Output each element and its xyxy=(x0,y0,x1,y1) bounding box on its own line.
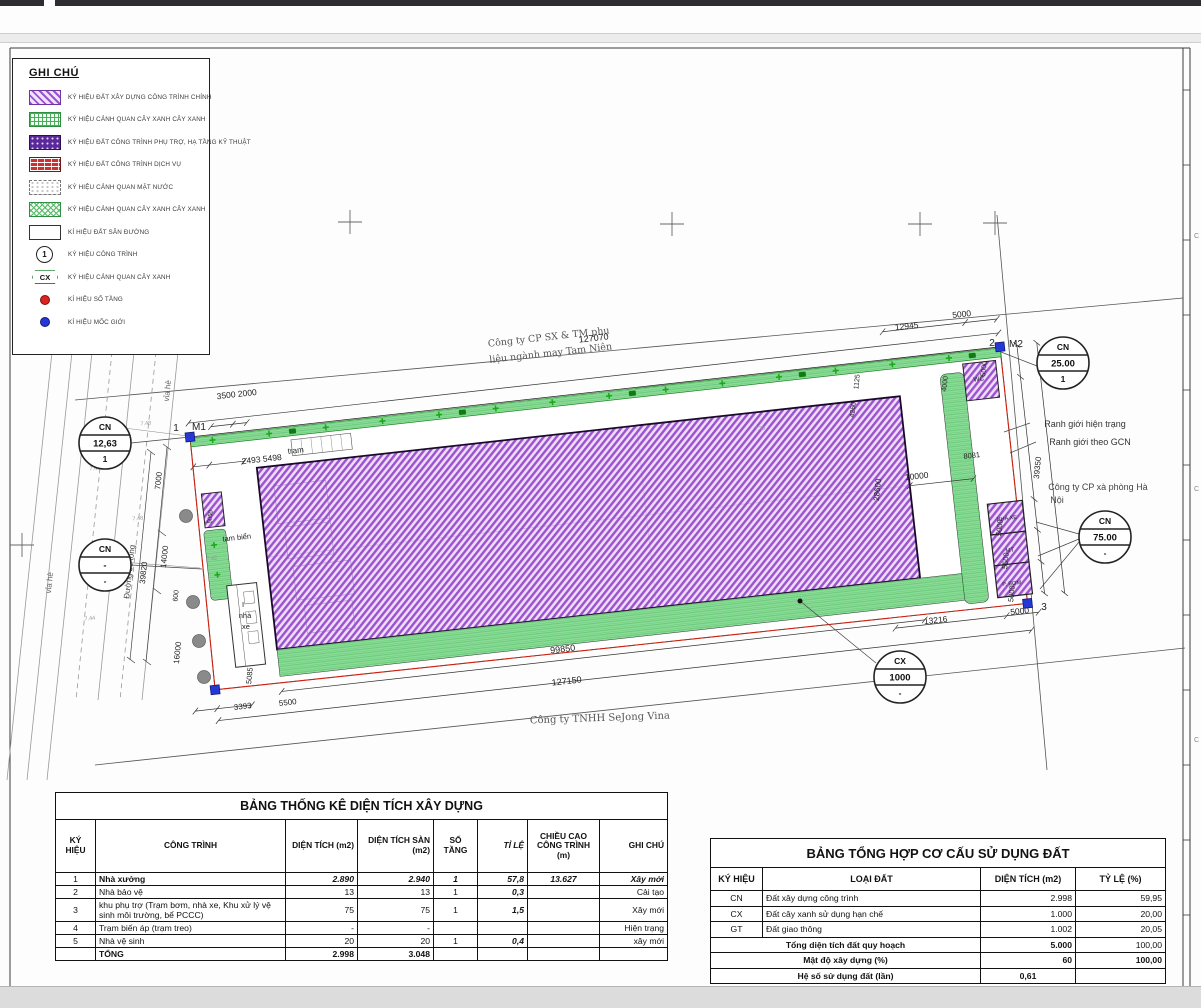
plan-annotation: 7.35 xyxy=(754,425,765,432)
brick-red-icon xyxy=(29,157,61,172)
table-cell: Đất cây xanh sử dụng hạn chế xyxy=(763,906,981,922)
column-header: SỐ TẦNG xyxy=(434,820,478,873)
table-cell: 2.998 xyxy=(981,891,1076,907)
plan-annotation: 39350 xyxy=(1032,456,1043,480)
plan-annotation: M1 xyxy=(192,422,206,433)
column-header: TỶ LỆ (%) xyxy=(1076,868,1166,891)
plan-annotation: 5000 xyxy=(1006,585,1017,603)
plan-annotation: MT xyxy=(1005,548,1015,555)
table-cell: 13 xyxy=(358,886,434,899)
legend-item-label: KÝ HIỆU ĐẤT XÂY DỰNG CÔNG TRÌNH CHÍNH xyxy=(68,94,212,101)
table-cell: 59,95 xyxy=(1076,891,1166,907)
table-cell: TỔNG xyxy=(96,948,286,961)
table-cell: 0,3 xyxy=(478,886,528,899)
plan-annotation: Nội xyxy=(1050,495,1064,505)
legend-item-label: KÝ HIỆU CẢNH QUAN CÂY XANH CÂY XANH xyxy=(68,206,206,213)
svg-text:CX: CX xyxy=(894,656,906,666)
circle-1-icon: 1 xyxy=(36,246,53,263)
svg-text:-: - xyxy=(103,561,106,572)
plan-annotation: trạm xyxy=(287,445,304,456)
column-header: DIỆN TÍCH (m2) xyxy=(286,820,358,873)
table-cell: 20 xyxy=(286,935,358,948)
table-cell: khu phụ trợ (Trạm bơm, nhà xe, Khu xử lý… xyxy=(96,899,286,922)
table-cell: 1 xyxy=(434,899,478,922)
svg-text:CN: CN xyxy=(1099,516,1111,526)
table-cell: 13 xyxy=(286,886,358,899)
table-cell: 3 xyxy=(56,899,96,922)
svg-text:-: - xyxy=(1104,548,1107,558)
table-cell: 100,00 xyxy=(1076,937,1166,953)
column-header: CHIỀU CAO CÔNG TRÌNH (m) xyxy=(528,820,600,873)
plan-annotation: xe xyxy=(242,622,250,631)
legend-item-label: KÝ HIỆU CÔNG TRÌNH xyxy=(68,251,137,258)
plan-annotation: 5500 xyxy=(1000,552,1011,570)
plan-annotation: 7.44 xyxy=(84,615,95,622)
table-cell: xây mới xyxy=(600,935,668,948)
table-cell: 1 xyxy=(434,873,478,886)
table-cell: 2.890 xyxy=(286,873,358,886)
drawing-sheet: CCC xyxy=(0,0,1201,1007)
table-cell: - xyxy=(286,922,358,935)
table-cell: CN xyxy=(711,891,763,907)
construction-area-table: BẢNG THỐNG KÊ DIỆN TÍCH XÂY DỰNG KÝ HIỆU… xyxy=(55,792,668,961)
bottom-strip xyxy=(0,986,1201,1008)
table-cell: 75 xyxy=(286,899,358,922)
table-cell xyxy=(478,922,528,935)
table-cell: 20 xyxy=(358,935,434,948)
table-row: CXĐất cây xanh sử dụng hạn chế1.00020,00 xyxy=(711,906,1166,922)
legend-item: 1KÝ HIỆU CÔNG TRÌNH xyxy=(29,244,209,267)
column-header: LOẠI ĐẤT xyxy=(763,868,981,891)
legend-panel: GHI CHÚ KÝ HIỆU ĐẤT XÂY DỰNG CÔNG TRÌNH … xyxy=(12,58,210,355)
table-row: 2Nhà bảo vệ131310,3Cải tạo xyxy=(56,886,668,899)
plan-annotation: 7.42 xyxy=(206,555,217,562)
svg-text:-: - xyxy=(104,576,107,586)
frame-grid-letters: CCC xyxy=(1194,233,1199,744)
svg-text:1: 1 xyxy=(103,454,108,464)
plan-annotation: 39820 xyxy=(138,561,149,585)
svg-text:CN: CN xyxy=(99,544,111,554)
column-header: CÔNG TRÌNH xyxy=(96,820,286,873)
table-cell: 100,00 xyxy=(1076,953,1166,969)
table-cell: 13.627 xyxy=(528,873,600,886)
legend-item: KÝ HIỆU ĐẤT XÂY DỰNG CÔNG TRÌNH CHÍNH xyxy=(29,86,209,109)
legend-item: KÍ HIỆU SỐ TẦNG xyxy=(29,289,209,312)
table-cell: 1.000 xyxy=(981,906,1076,922)
plan-annotation: M2 xyxy=(1009,339,1023,350)
table-title: BẢNG TỔNG HỢP CƠ CẤU SỬ DỤNG ĐẤT xyxy=(711,839,1166,868)
table-cell: Đất xây dựng công trình xyxy=(763,891,981,907)
table-cell xyxy=(600,948,668,961)
table-cell: 5 xyxy=(56,935,96,948)
column-header: DIỆN TÍCH (m2) xyxy=(981,868,1076,891)
table-cell: Mật độ xây dựng (%) xyxy=(711,953,981,969)
legend-item: KÍ HIỆU MỐC GIỚI xyxy=(29,311,209,334)
table-cell: 5.000 xyxy=(981,937,1076,953)
plan-annotation: 5085 xyxy=(244,667,255,685)
plan-annotation: 5500 xyxy=(278,697,297,708)
legend-item-label: KÍ HIỆU SỐ TẦNG xyxy=(68,296,123,303)
table-cell xyxy=(434,922,478,935)
column-header: GHI CHÚ xyxy=(600,820,668,873)
plan-annotation: 3500 2000 xyxy=(216,387,257,401)
plan-annotation: 600 xyxy=(172,590,180,602)
frame-grid-ticks xyxy=(1183,90,1190,915)
table-cell: 1 xyxy=(434,886,478,899)
table-row: Mật độ xây dựng (%)60100,00 xyxy=(711,953,1166,969)
hatch-purple-icon xyxy=(29,90,61,105)
land-use-table: BẢNG TỔNG HỢP CƠ CẤU SỬ DỤNG ĐẤT KÝ HIỆU… xyxy=(710,838,1166,984)
table-cell: Trạm biến áp (trạm treo) xyxy=(96,922,286,935)
table-cell: 1 xyxy=(56,873,96,886)
svg-text:CN: CN xyxy=(1057,342,1069,352)
plan-annotation: Công ty CP xà phòng Hà xyxy=(1048,482,1147,492)
svg-text:-: - xyxy=(899,688,902,698)
legend-title: GHI CHÚ xyxy=(29,67,209,79)
table-cell: 0,61 xyxy=(981,968,1076,984)
table-cell: 1.002 xyxy=(981,922,1076,938)
table-row: CNĐất xây dựng công trình2.99859,95 xyxy=(711,891,1166,907)
table-row: 5Nhà vệ sinh202010,4xây mới xyxy=(56,935,668,948)
plan-annotation: 7.48 xyxy=(140,420,151,427)
legend-item-label: KÝ HIỆU ĐẤT CÔNG TRÌNH PHỤ TRỢ, HẠ TẦNG … xyxy=(68,139,251,146)
legend-item: KÝ HIỆU ĐẤT CÔNG TRÌNH DỊCH VỤ xyxy=(29,154,209,177)
table-cell: 0,4 xyxy=(478,935,528,948)
grid-green-icon xyxy=(29,112,61,127)
table-cell: Xây mới xyxy=(600,899,668,922)
plan-annotation: 127150 xyxy=(551,674,582,687)
table-cell: 57,8 xyxy=(478,873,528,886)
dot-blue-icon xyxy=(40,317,50,327)
legend-item-label: KÝ HIỆU ĐẤT CÔNG TRÌNH DỊCH VỤ xyxy=(68,161,181,168)
land-use-badge: CX1000- xyxy=(874,651,926,703)
plan-annotation: 5000 xyxy=(952,308,972,320)
table-cell: CX xyxy=(711,906,763,922)
table-cell: Xây mới xyxy=(600,873,668,886)
table-cell: GT xyxy=(711,922,763,938)
svg-text:C: C xyxy=(1194,737,1199,744)
legend-item: KÝ HIỆU CẢNH QUAN CÂY XANH CÂY XANH xyxy=(29,199,209,222)
table-row: TỔNG2.9983.048 xyxy=(56,948,668,961)
table-row: 4Trạm biến áp (trạm treo)--Hiện trạng xyxy=(56,922,668,935)
legend-item-label: KÍ HIỆU MỐC GIỚI xyxy=(68,319,125,326)
site-group xyxy=(159,312,1072,727)
plan-annotation: Ranh giới theo GCN xyxy=(1049,437,1130,447)
table-title: BẢNG THỐNG KÊ DIỆN TÍCH XÂY DỰNG xyxy=(56,793,668,820)
plan-annotation: 2 xyxy=(989,338,995,349)
table-row: GTĐất giao thông1.00220,05 xyxy=(711,922,1166,938)
svg-text:1000: 1000 xyxy=(889,673,910,684)
dots-purple-icon xyxy=(29,135,61,150)
table-cell xyxy=(1076,968,1166,984)
plain-white-icon xyxy=(29,225,61,240)
plan-annotation: Công ty TNHH SeJong Vina xyxy=(530,711,670,727)
table-cell: 20,00 xyxy=(1076,906,1166,922)
svg-text:25.00: 25.00 xyxy=(1051,359,1075,370)
legend-item: KÝ HIỆU CẢNH QUAN MẶT NƯỚC xyxy=(29,176,209,199)
plan-annotation: WC xyxy=(973,375,985,383)
legend-item: KÝ HIỆU ĐẤT CÔNG TRÌNH PHỤ TRỢ, HẠ TẦNG … xyxy=(29,131,209,154)
table-cell: 2.998 xyxy=(286,948,358,961)
plan-annotation: 14000 xyxy=(159,545,170,569)
plan-annotation: 3393 xyxy=(233,701,252,712)
svg-text:C: C xyxy=(1194,486,1199,493)
plan-annotation: 1 xyxy=(173,423,179,434)
plan-annotation: 7000 xyxy=(153,471,164,490)
legend-item-label: KÝ HIỆU CẢNH QUAN CÂY XANH CÂY XANH xyxy=(68,116,206,123)
plan-annotation: 16000 xyxy=(172,641,183,665)
plan-annotation: 12945 xyxy=(894,320,919,333)
table-cell xyxy=(528,922,600,935)
table-cell xyxy=(56,948,96,961)
table-cell: 4 xyxy=(56,922,96,935)
table-cell: Đất giao thông xyxy=(763,922,981,938)
table-cell: 3.048 xyxy=(358,948,434,961)
legend-item-label: KÝ HIỆU CẢNH QUAN MẶT NƯỚC xyxy=(68,184,173,191)
plan-annotation: 13216 xyxy=(923,614,948,627)
table-cell: 1,5 xyxy=(478,899,528,922)
table-row: 3khu phụ trợ (Trạm bơm, nhà xe, Khu xử l… xyxy=(56,899,668,922)
table-cell: Nhà vệ sinh xyxy=(96,935,286,948)
land-use-badge: CN-- xyxy=(79,539,131,591)
table-cell xyxy=(528,948,600,961)
plan-annotation: vỉa hè xyxy=(44,571,55,594)
svg-text:12,63: 12,63 xyxy=(93,439,117,450)
svg-text:CN: CN xyxy=(99,422,111,432)
table-cell xyxy=(528,935,600,948)
land-use-badge: CN75.00- xyxy=(1079,511,1131,563)
table-row: 1Nhà xưởng2.8902.940157,813.627Xây mới xyxy=(56,873,668,886)
table-cell: Tổng diện tích đất quy hoạch xyxy=(711,937,981,953)
table-cell xyxy=(528,886,600,899)
land-use-badge: CN25.001 xyxy=(1037,337,1089,389)
land-use-badge: CN12,631 xyxy=(79,417,131,469)
svg-text:1: 1 xyxy=(1061,374,1066,384)
plan-annotation: vỉa hè xyxy=(162,379,173,402)
legend-item: KÍ HIỆU ĐẤT SÂN ĐƯỜNG xyxy=(29,221,209,244)
table-cell: 60 xyxy=(981,953,1076,969)
table-cell: Cải tạo xyxy=(600,886,668,899)
plan-annotation: 7.48 xyxy=(132,515,143,522)
table-cell xyxy=(528,899,600,922)
cross-green-icon xyxy=(29,202,61,217)
table-cell: 1 xyxy=(434,935,478,948)
column-header: KÝ HIỆU xyxy=(711,868,763,891)
table-cell: 75 xyxy=(358,899,434,922)
svg-text:C: C xyxy=(1194,233,1199,240)
svg-text:75.00: 75.00 xyxy=(1093,533,1117,544)
table-row: Tổng diện tích đất quy hoạch5.000100,00 xyxy=(711,937,1166,953)
plan-annotation: 99850 xyxy=(550,643,576,656)
cx-badge-icon: CX xyxy=(32,270,58,284)
legend-item-label: KÍ HIỆU ĐẤT SÂN ĐƯỜNG xyxy=(68,229,149,236)
plan-annotation: I xyxy=(242,600,244,609)
table-cell: Nhà xưởng xyxy=(96,873,286,886)
table-cell: 20,05 xyxy=(1076,922,1166,938)
column-header: DIỆN TÍCH SÀN (m2) xyxy=(358,820,434,873)
dots-white-icon xyxy=(29,180,61,195)
column-header: KÝ HIỆU xyxy=(56,820,96,873)
legend-item: CXKÝ HIỆU CẢNH QUAN CÂY XANH xyxy=(29,266,209,289)
plan-annotation: 5000 xyxy=(1010,605,1030,617)
table-row: Hệ số sử dụng đất (lần)0,61 xyxy=(711,968,1166,984)
plan-annotation: 3 xyxy=(1041,602,1047,613)
plan-annotation: 8081 xyxy=(963,450,981,461)
table-cell: Hệ số sử dụng đất (lần) xyxy=(711,968,981,984)
table-cell: 2 xyxy=(56,886,96,899)
plan-annotation: nhà xyxy=(239,611,252,620)
dot-red-icon xyxy=(40,295,50,305)
table-cell: Nhà bảo vệ xyxy=(96,886,286,899)
table-cell xyxy=(478,948,528,961)
table-cell xyxy=(434,948,478,961)
table-cell: 2.940 xyxy=(358,873,434,886)
legend-item: KÝ HIỆU CẢNH QUAN CÂY XANH CÂY XANH xyxy=(29,109,209,132)
column-header: TỈ LỆ xyxy=(478,820,528,873)
legend-item-label: KÝ HIỆU CẢNH QUAN CÂY XANH xyxy=(68,274,170,281)
table-cell: - xyxy=(358,922,434,935)
plan-annotation: Ranh giới hiện trạng xyxy=(1044,419,1125,429)
legend-items: KÝ HIỆU ĐẤT XÂY DỰNG CÔNG TRÌNH CHÍNHKÝ … xyxy=(29,86,209,334)
table-cell: Hiện trạng xyxy=(600,922,668,935)
